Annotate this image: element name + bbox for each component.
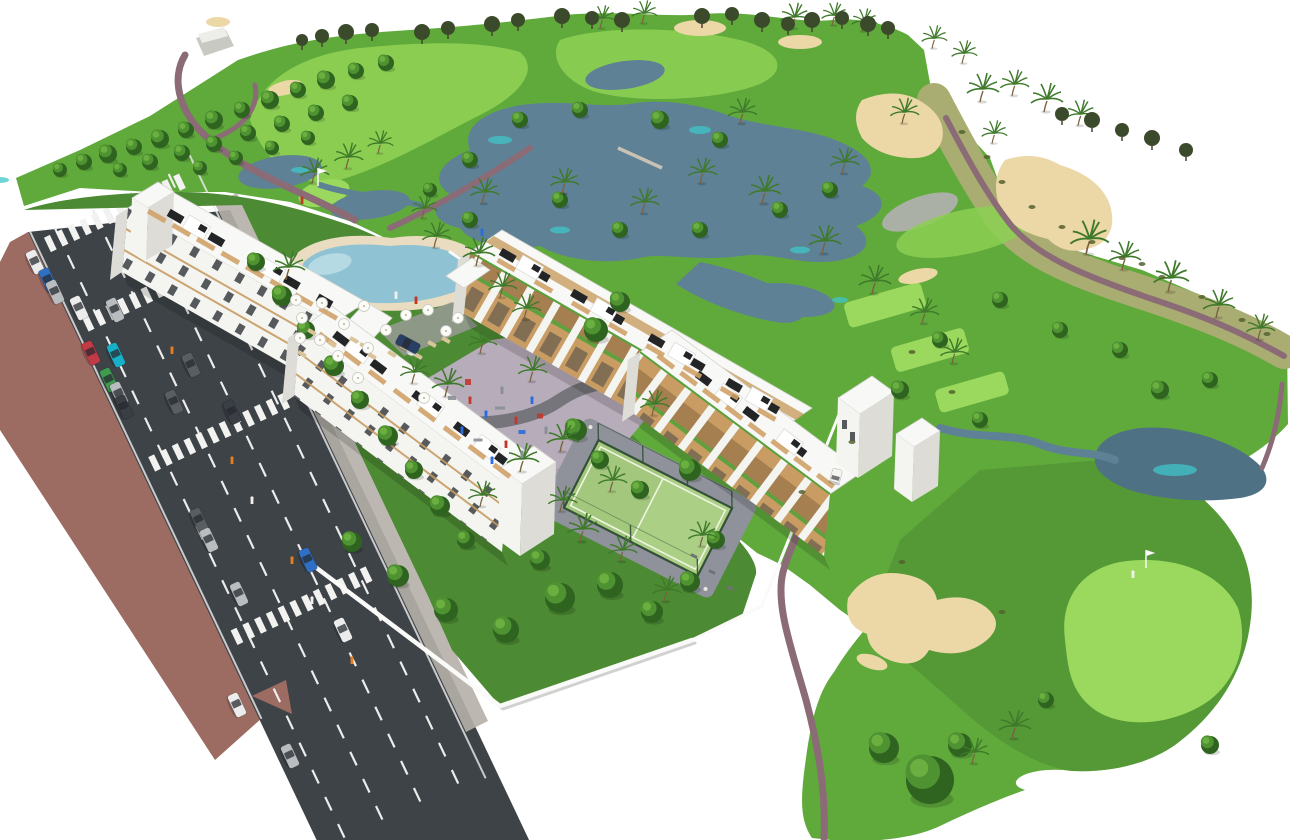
maintenance-shed	[196, 27, 234, 56]
umbrella-pole	[405, 314, 407, 316]
tree-highlight	[207, 112, 214, 119]
person-body	[171, 349, 174, 354]
palm-frond	[822, 15, 835, 18]
tree-highlight	[230, 152, 235, 157]
person	[230, 456, 233, 464]
person-body	[395, 294, 398, 299]
palm-shadow	[477, 352, 486, 355]
palm-frond	[1015, 84, 1029, 87]
person	[530, 396, 533, 404]
tree-highlight	[263, 92, 270, 99]
tree-highlight	[513, 113, 519, 119]
palm-shadow	[343, 167, 352, 170]
scrub-bush	[999, 180, 1006, 184]
person	[300, 196, 303, 204]
crosswalk-stripe	[103, 207, 116, 224]
tree-highlight	[77, 155, 83, 161]
horizon-tree	[1115, 123, 1129, 141]
palm-shadow	[960, 62, 968, 65]
tree-highlight	[993, 293, 999, 299]
palm-frond	[934, 38, 947, 41]
person-body	[515, 419, 518, 424]
person	[484, 410, 487, 418]
umbrella-pole	[457, 317, 459, 319]
tree-highlight	[153, 131, 160, 138]
umbrella	[297, 313, 308, 324]
palm-shadow	[479, 202, 488, 205]
tree-highlight	[653, 112, 660, 119]
tree-highlight	[612, 293, 620, 301]
palm-tree	[952, 40, 978, 64]
tree-highlight	[973, 413, 979, 419]
tree-highlight	[586, 319, 595, 328]
palm-shadow	[376, 152, 384, 155]
person-body	[231, 459, 234, 464]
palm-shadow	[697, 545, 706, 548]
scrub-bush	[1119, 256, 1126, 260]
palm-shadow	[557, 510, 566, 513]
person-body	[415, 299, 418, 304]
playground-equipment	[519, 430, 526, 434]
palm-trunk	[932, 40, 934, 49]
tree-highlight	[548, 585, 559, 596]
tree-highlight	[459, 532, 466, 539]
tree-canopy	[694, 8, 710, 24]
palm-shadow	[477, 505, 486, 508]
scrub-bush	[899, 560, 906, 564]
umbrella	[295, 333, 306, 344]
umbrella-pole	[367, 347, 369, 349]
person	[520, 450, 523, 458]
tree-highlight	[275, 117, 281, 123]
tree-highlight	[291, 83, 297, 89]
person	[1131, 570, 1134, 578]
person	[414, 296, 417, 304]
palm-frond	[1171, 277, 1189, 281]
tree-canopy	[1179, 143, 1193, 157]
tree-canopy	[365, 23, 379, 37]
palm-shadow	[1009, 94, 1018, 97]
tree-highlight	[207, 137, 213, 143]
umbrella	[317, 298, 328, 309]
person	[460, 426, 463, 434]
palm-frond	[1031, 99, 1047, 103]
horizon-tree	[1179, 143, 1193, 161]
palm-shadow	[737, 122, 746, 125]
tree-highlight	[823, 183, 829, 189]
palm-trunk	[980, 91, 983, 102]
person	[250, 496, 253, 504]
tree-canopy	[1144, 130, 1160, 146]
palm-shadow	[919, 322, 928, 325]
palm-shadow	[977, 100, 987, 103]
tree-highlight	[235, 103, 241, 109]
scrub-bush	[1029, 205, 1036, 209]
umbrella	[339, 319, 350, 330]
tree-highlight	[175, 146, 181, 152]
tree-highlight	[532, 551, 540, 559]
architectural-render	[0, 0, 1290, 840]
palm-shadow	[869, 292, 879, 295]
palm-shadow	[969, 762, 978, 765]
tree-highlight	[309, 106, 315, 112]
palm-frond	[967, 89, 983, 93]
palm-shadow	[759, 202, 769, 205]
person-body	[1132, 573, 1135, 578]
tree-highlight	[643, 602, 651, 610]
person	[350, 656, 353, 664]
tree-canopy	[315, 29, 329, 43]
palm-shadow	[830, 24, 838, 27]
umbrella-pole	[299, 337, 301, 339]
tree-highlight	[1203, 373, 1209, 379]
palm-shadow	[598, 27, 606, 30]
umbrella	[423, 305, 434, 316]
tree-highlight	[872, 735, 883, 746]
umbrella	[333, 351, 344, 362]
palm-shadow	[649, 414, 658, 417]
scrub-bush	[799, 490, 806, 494]
tree-highlight	[1039, 693, 1045, 699]
person-body	[505, 443, 508, 448]
palm-frond	[983, 88, 999, 92]
tree-highlight	[693, 223, 699, 229]
umbrella	[363, 343, 374, 354]
umbrella	[453, 313, 464, 324]
palm-shadow	[819, 252, 829, 255]
palm-frond	[964, 53, 977, 56]
tree-highlight	[274, 287, 282, 295]
umbrella	[315, 335, 326, 346]
palm-tree	[967, 73, 999, 104]
palm-frond	[1000, 84, 1014, 88]
tree-highlight	[436, 599, 445, 608]
palm-shadow	[409, 382, 418, 385]
tree-highlight	[143, 155, 149, 161]
tree-highlight	[353, 392, 360, 399]
umbrella-pole	[343, 323, 345, 325]
tree-canopy	[585, 11, 599, 25]
palm-shadow	[577, 540, 587, 543]
palm-shadow	[497, 296, 506, 299]
person	[490, 456, 493, 464]
umbrella-pole	[301, 317, 303, 319]
person-body	[291, 559, 294, 564]
scrub-bush	[1239, 318, 1246, 322]
palm-shadow	[661, 600, 670, 603]
palm-shadow	[639, 212, 648, 215]
tree-highlight	[773, 203, 779, 209]
scrub-bush	[1199, 295, 1206, 299]
person	[504, 440, 507, 448]
render-canvas	[0, 0, 1290, 840]
tree-canopy	[725, 7, 739, 21]
palm-tree	[922, 25, 948, 49]
umbrella	[419, 393, 430, 404]
palm-shadow	[1082, 252, 1094, 256]
scrub-bush	[909, 350, 916, 354]
person-body	[351, 659, 354, 664]
tree-highlight	[681, 460, 689, 468]
tree-highlight	[349, 64, 355, 70]
palm-tree	[982, 120, 1008, 144]
tree-highlight	[950, 734, 959, 743]
person-body	[301, 199, 304, 204]
umbrella	[401, 310, 412, 321]
palm-shadow	[431, 246, 440, 249]
person	[468, 396, 471, 404]
palm-shadow	[839, 172, 848, 175]
tree-highlight	[713, 133, 719, 139]
tree-canopy	[754, 12, 770, 28]
palm-trunk	[962, 55, 964, 64]
tree-highlight	[567, 420, 575, 428]
tree-highlight	[553, 193, 559, 199]
palm-shadow	[607, 490, 616, 493]
palm-shadow	[930, 47, 938, 50]
tree-highlight	[344, 533, 352, 541]
tree-highlight	[389, 566, 397, 574]
palm-frond	[1047, 98, 1063, 102]
palm-shadow	[1041, 110, 1051, 113]
tree-highlight	[432, 497, 440, 505]
tree-highlight	[599, 574, 609, 584]
palm-trunk	[1044, 101, 1047, 112]
tree-highlight	[495, 619, 505, 629]
tree-canopy	[338, 24, 354, 40]
scrub-bush	[959, 130, 966, 134]
tree-highlight	[326, 357, 334, 365]
palm-frond	[982, 133, 995, 136]
umbrella	[291, 295, 302, 306]
umbrella-pole	[385, 329, 387, 331]
tree-highlight	[1113, 343, 1119, 349]
palm-trunk	[1078, 116, 1081, 126]
tree-highlight	[893, 382, 900, 389]
person-body	[481, 231, 484, 236]
umbrella	[441, 326, 452, 337]
palm-frond	[922, 38, 935, 41]
palm-shadow	[640, 22, 648, 25]
tree-highlight	[266, 142, 271, 147]
person-body	[531, 399, 534, 404]
tree-highlight	[319, 72, 326, 79]
scrub-bush	[949, 390, 956, 394]
tree-highlight	[424, 184, 429, 189]
person	[394, 291, 397, 299]
palm-shadow	[420, 217, 428, 220]
tree-highlight	[249, 254, 256, 261]
umbrella-pole	[295, 299, 297, 301]
tree-canopy	[835, 11, 849, 25]
person-body	[521, 453, 524, 458]
scrub-bush	[1059, 225, 1066, 229]
palm-shadow	[517, 470, 527, 473]
tree-canopy	[484, 16, 500, 32]
tree-highlight	[1053, 323, 1059, 329]
scrub-bush	[1139, 262, 1146, 266]
scrub-bush	[849, 440, 856, 444]
palm-shadow	[527, 380, 536, 383]
person	[290, 556, 293, 564]
tree-highlight	[682, 573, 690, 581]
person-body	[491, 459, 494, 464]
tree-highlight	[633, 482, 640, 489]
palm-shadow	[283, 278, 293, 281]
tree-highlight	[933, 333, 939, 339]
playground-equipment	[448, 396, 456, 400]
palm-shadow	[1165, 290, 1176, 294]
tree-canopy	[1055, 107, 1069, 121]
umbrella-pole	[363, 305, 365, 307]
palm-shadow	[557, 450, 567, 453]
tree-canopy	[554, 8, 570, 24]
palm-frond	[994, 133, 1007, 136]
playground-equipment	[465, 379, 471, 385]
scrub-bush	[984, 155, 991, 159]
palm-shadow	[309, 182, 318, 185]
umbrella-pole	[423, 397, 425, 399]
tree-highlight	[593, 452, 600, 459]
tree-highlight	[343, 96, 349, 102]
person-body	[461, 429, 464, 434]
tree-highlight	[54, 164, 59, 169]
palm-shadow	[617, 560, 626, 563]
palm-shadow	[1075, 124, 1084, 127]
tree-canopy	[1115, 123, 1129, 137]
person	[310, 596, 313, 604]
person	[514, 416, 517, 424]
palm-shadow	[1213, 316, 1223, 319]
tree-highlight	[302, 132, 307, 137]
horizon-tree	[1144, 130, 1160, 150]
tree-highlight	[1203, 737, 1210, 744]
person-body	[545, 429, 548, 434]
scrub-bush	[1264, 332, 1271, 336]
umbrella	[381, 325, 392, 336]
scrub-bush	[999, 610, 1006, 614]
tree-highlight	[127, 140, 133, 146]
palm-shadow	[1009, 737, 1019, 740]
tree-highlight	[114, 164, 119, 169]
tree-canopy	[804, 12, 820, 28]
umbrella-pole	[337, 355, 339, 357]
tree-canopy	[614, 12, 630, 28]
tree-highlight	[407, 462, 414, 469]
palm-shadow	[559, 192, 568, 195]
tree-canopy	[1084, 112, 1100, 128]
palm-frond	[952, 53, 965, 56]
tree-highlight	[194, 162, 199, 167]
tree	[1201, 735, 1220, 755]
palm-shadow	[949, 362, 958, 365]
person-body	[469, 399, 472, 404]
tree-highlight	[241, 126, 247, 132]
palm-frond	[1125, 256, 1141, 260]
umbrella	[359, 301, 370, 312]
umbrella-pole	[319, 339, 321, 341]
person-body	[485, 413, 488, 418]
horizon-tree	[1055, 107, 1069, 125]
playground-equipment	[474, 439, 483, 442]
tree-canopy	[296, 34, 308, 46]
umbrella-pole	[321, 302, 323, 304]
tree-highlight	[463, 153, 469, 159]
scrub-bush	[1089, 240, 1096, 244]
tree-canopy	[441, 21, 455, 35]
tree-canopy	[414, 24, 430, 40]
tree-highlight	[1153, 382, 1160, 389]
umbrella-pole	[357, 377, 359, 379]
person	[170, 346, 173, 354]
tree-highlight	[910, 759, 928, 777]
playground-equipment	[537, 414, 543, 419]
tree-highlight	[179, 123, 185, 129]
person	[500, 386, 503, 394]
palm-shadow	[1119, 268, 1129, 271]
tree-highlight	[380, 427, 388, 435]
tree-canopy	[860, 16, 876, 32]
palm-shadow	[990, 142, 998, 145]
palm-shadow	[697, 182, 706, 185]
palm-trunk	[992, 135, 994, 144]
palm-shadow	[899, 122, 908, 125]
palm-shadow	[521, 318, 530, 321]
person	[480, 228, 483, 236]
horizon-tree	[1084, 112, 1100, 132]
scrub-bush	[1159, 275, 1166, 279]
tree-highlight	[573, 103, 579, 109]
tree-highlight	[379, 56, 385, 62]
tree-highlight	[101, 146, 108, 153]
person-body	[501, 389, 504, 394]
person-body	[251, 499, 254, 504]
palm-shadow	[473, 264, 483, 267]
tree-highlight	[613, 223, 619, 229]
palm-shadow	[1255, 338, 1264, 341]
tree-canopy	[511, 13, 525, 27]
person-body	[311, 599, 314, 604]
umbrella	[353, 373, 364, 384]
playground-equipment	[495, 407, 505, 410]
tree-canopy	[881, 21, 895, 35]
tree-canopy	[781, 17, 795, 31]
palm-trunk	[1012, 86, 1015, 96]
person	[544, 426, 547, 434]
umbrella-pole	[427, 309, 429, 311]
umbrella-pole	[445, 330, 447, 332]
tree-highlight	[463, 213, 469, 219]
palm-tree	[1000, 70, 1029, 98]
